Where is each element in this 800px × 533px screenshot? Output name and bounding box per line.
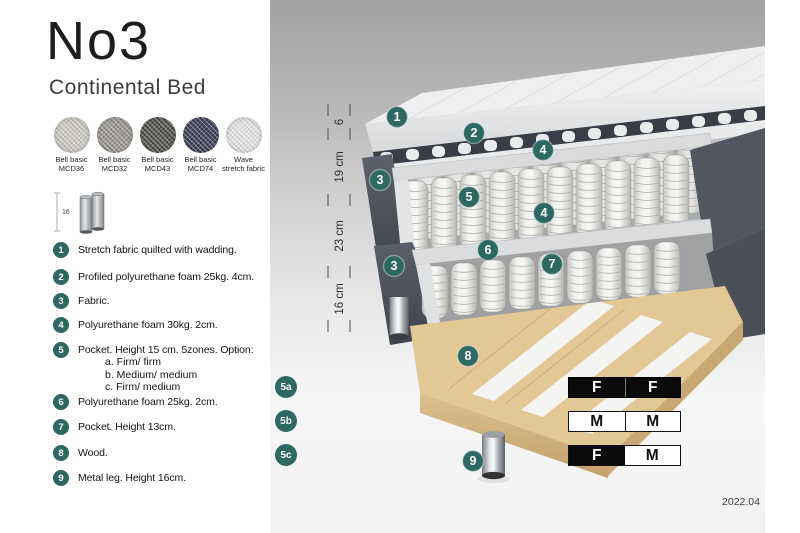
- fabric-swatch-label: Bell basic MCD36: [48, 156, 96, 173]
- legend-item-options: a. Firm/ firm b. Medium/ medium c. Firm/…: [105, 356, 197, 394]
- legend-item: 4 Polyurethane foam 30kg. 2cm.: [53, 317, 265, 333]
- fabric-swatch: Bell basic MCD36: [50, 117, 93, 173]
- leg-size-thumbnail: 16: [52, 187, 118, 242]
- legend-item: 2 Profiled polyurethane foam 25kg. 4cm.: [53, 269, 265, 285]
- legend-item-number: 6: [53, 394, 69, 410]
- diagram-marker-5: 5: [459, 187, 480, 208]
- fabric-swatch-image: [140, 117, 176, 153]
- diagram-marker-3a: 3: [370, 170, 391, 191]
- leg-height-label: 16: [62, 209, 70, 216]
- fabric-swatch-image: [183, 117, 219, 153]
- legend-item-number: 5: [53, 342, 69, 358]
- firmness-cell: F: [569, 446, 625, 465]
- diagram-marker-7: 7: [542, 254, 563, 275]
- firmness-cell: M: [625, 412, 681, 431]
- legend-item-number: 4: [53, 317, 69, 333]
- fabric-swatch-label: Bell basic MCD32: [91, 156, 139, 173]
- legend-option: b. Medium/ medium: [105, 369, 197, 382]
- svg-text:7: 7: [549, 257, 556, 271]
- firmness-cell: F: [569, 378, 625, 397]
- leg-thumbnail-cylinders: [80, 192, 104, 234]
- legend-option: c. Firm/ medium: [105, 381, 197, 394]
- legend-item-number: 9: [53, 470, 69, 486]
- svg-text:9: 9: [470, 454, 477, 468]
- fabric-swatch: Wave stretch fabric: [222, 117, 265, 173]
- legend-item-text: Profiled polyurethane foam 25kg. 4cm.: [78, 271, 254, 283]
- dimension-label: 19 cm: [334, 151, 346, 182]
- legend-item-text: Pocket. Height 13cm.: [78, 421, 176, 433]
- svg-text:1: 1: [394, 110, 401, 124]
- legend-item-number: 7: [53, 419, 69, 435]
- diagram-marker-9: 9: [463, 451, 484, 472]
- legend-item: 9 Metal leg. Height 16cm.: [53, 470, 265, 486]
- fabric-swatch-image: [54, 117, 90, 153]
- product-subtitle: Continental Bed: [49, 76, 206, 100]
- legend-item-text: Fabric.: [78, 295, 109, 307]
- svg-text:3: 3: [377, 173, 384, 187]
- dimension-ruler: 6 19 cm 23 cm 16 cm: [328, 104, 350, 332]
- swatch-label-line2: MCD74: [188, 164, 213, 173]
- legend-item-text: Pocket. Height 15 cm. 5zones. Option:: [78, 344, 253, 356]
- legend-item-number: 1: [53, 242, 69, 258]
- legend-item-text: Polyurethane foam 25kg. 2cm.: [78, 396, 218, 408]
- swatch-label-line2: MCD32: [102, 164, 127, 173]
- swatch-label-line2: MCD43: [145, 164, 170, 173]
- diagram-marker-4b: 4: [534, 203, 555, 224]
- legend-item-text: Polyurethane foam 30kg. 2cm.: [78, 319, 218, 331]
- dimension-label: 16 cm: [334, 283, 346, 314]
- legend-option: a. Firm/ firm: [105, 356, 197, 369]
- product-sheet: No3 Continental Bed Bell basic MCD36 Bel…: [0, 0, 800, 533]
- fabric-swatch: Bell basic MCD74: [179, 117, 222, 173]
- fabric-swatch-label: Bell basic MCD74: [177, 156, 225, 173]
- fabric-swatch: Bell basic MCD32: [93, 117, 136, 173]
- svg-text:5: 5: [466, 190, 473, 204]
- diagram-marker-6: 6: [478, 240, 499, 261]
- dimension-label: 23 cm: [334, 220, 346, 251]
- bed-cutaway-illustration: 6 19 cm 23 cm 16 cm 1 2 4 3 5 4 6 7: [270, 0, 765, 533]
- swatch-label-line2: MCD36: [59, 164, 84, 173]
- firmness-row-label-5b: 5b: [275, 410, 297, 432]
- legend-item-number: 3: [53, 293, 69, 309]
- legend-item-text: Metal leg. Height 16cm.: [78, 472, 186, 484]
- firmness-row-label-5a: 5a: [275, 376, 297, 398]
- firmness-row-5c: F M: [568, 445, 681, 466]
- svg-text:8: 8: [465, 349, 472, 363]
- diagram-marker-8: 8: [458, 346, 479, 367]
- version-label: 2022.04: [700, 496, 760, 508]
- svg-text:4: 4: [540, 143, 547, 157]
- swatch-label-line2: stretch fabric: [222, 164, 265, 173]
- info-panel: No3 Continental Bed Bell basic MCD36 Bel…: [0, 0, 270, 533]
- svg-text:2: 2: [471, 126, 478, 140]
- legend-item: 1 Stretch fabric quilted with wadding.: [53, 242, 265, 258]
- svg-text:6: 6: [485, 243, 492, 257]
- fabric-swatch-label: Bell basic MCD43: [134, 156, 182, 173]
- legend-item: 3 Fabric.: [53, 293, 265, 309]
- fabric-swatch-image: [226, 117, 262, 153]
- rear-metal-leg: [390, 297, 409, 340]
- legend-item-text: Stretch fabric quilted with wadding.: [78, 244, 237, 256]
- firmness-row-5b: M M: [568, 411, 681, 432]
- fabric-swatch-image: [97, 117, 133, 153]
- diagram-marker-2: 2: [464, 123, 485, 144]
- fabric-swatch-label: Wave stretch fabric: [220, 156, 268, 173]
- diagram-panel: 6 19 cm 23 cm 16 cm 1 2 4 3 5 4 6 7: [270, 0, 765, 533]
- svg-text:3: 3: [391, 259, 398, 273]
- firmness-cell: M: [569, 412, 625, 431]
- legend-item-number: 8: [53, 445, 69, 461]
- svg-text:4: 4: [541, 206, 548, 220]
- dimension-label: 6: [334, 119, 346, 125]
- legend-item: 7 Pocket. Height 13cm.: [53, 419, 265, 435]
- firmness-row-label-5c: 5c: [275, 444, 297, 466]
- firmness-cell: M: [625, 446, 681, 465]
- legend-item-number: 2: [53, 269, 69, 285]
- fabric-swatch: Bell basic MCD43: [136, 117, 179, 173]
- diagram-marker-3b: 3: [384, 256, 405, 277]
- firmness-row-5a: F F: [568, 377, 681, 398]
- legend-item-text: Wood.: [78, 447, 108, 459]
- legend-item: 8 Wood.: [53, 445, 265, 461]
- product-title: No3: [46, 12, 151, 70]
- legend-item: 6 Polyurethane foam 25kg. 2cm.: [53, 394, 265, 410]
- diagram-marker-1: 1: [387, 107, 408, 128]
- diagram-marker-4a: 4: [533, 140, 554, 161]
- fabric-swatches: Bell basic MCD36 Bell basic MCD32 Bell b…: [50, 117, 265, 173]
- firmness-cell: F: [625, 378, 681, 397]
